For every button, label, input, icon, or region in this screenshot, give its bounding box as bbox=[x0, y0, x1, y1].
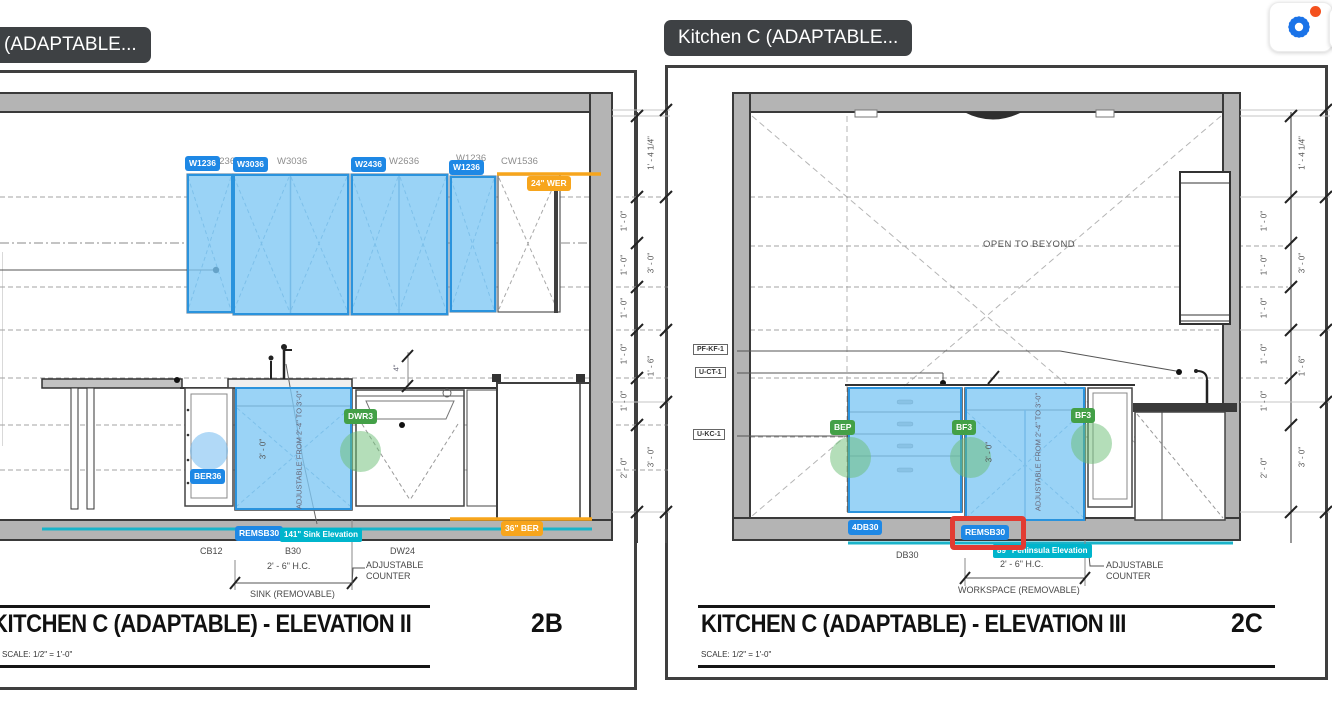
chip-w3036[interactable]: W3036 bbox=[233, 157, 268, 172]
right-view-scale: SCALE: 1/2" = 1'-0" bbox=[701, 649, 771, 659]
dim-label: 1' - 4 1/4" bbox=[647, 136, 656, 170]
dim-label: 3' - 0" bbox=[647, 253, 656, 273]
marker-circle-ber36[interactable] bbox=[190, 432, 228, 470]
chip-bf3-b[interactable]: BF3 bbox=[1071, 408, 1095, 423]
marker-circle-dwr3[interactable] bbox=[340, 431, 381, 472]
settings-button[interactable] bbox=[1269, 2, 1332, 52]
chip-remsb30-left[interactable]: REMSB30 bbox=[235, 526, 283, 541]
base-label-db30: DB30 bbox=[896, 550, 919, 560]
base-label-cb12: CB12 bbox=[200, 546, 223, 556]
dim-hc-left: 2' - 6" H.C. bbox=[267, 561, 310, 571]
cab-dim-3ft-right: 3' - 0" bbox=[985, 442, 994, 462]
dim-label: 1' - 0" bbox=[620, 298, 629, 318]
right-view-tooltip[interactable]: Kitchen C (ADAPTABLE... bbox=[664, 20, 912, 56]
title-rule bbox=[698, 665, 1275, 668]
right-sheet-number: 2C bbox=[1231, 608, 1263, 639]
chip-w2436[interactable]: W2436 bbox=[351, 157, 386, 172]
dim-label: 1' - 0" bbox=[1260, 298, 1269, 318]
dim-label: 3' - 0" bbox=[647, 447, 656, 467]
highlight-w3036[interactable] bbox=[233, 174, 349, 315]
base-label-b30: B30 bbox=[285, 546, 301, 556]
highlight-w1236-b[interactable] bbox=[450, 176, 496, 312]
flag-sink-elevation[interactable]: 141" Sink Elevation bbox=[280, 528, 362, 542]
marker-circle-bep[interactable] bbox=[830, 437, 871, 478]
drawing-viewer: { "ui": { "tooltip_left": "(ADAPTABLE...… bbox=[0, 0, 1332, 714]
chip-w1236-b[interactable]: W1236 bbox=[449, 160, 484, 175]
dim-label: 3' - 0" bbox=[1298, 253, 1307, 273]
left-sheet-number: 2B bbox=[531, 608, 563, 639]
highlight-sink-base[interactable] bbox=[235, 387, 352, 510]
title-rule bbox=[698, 605, 1275, 608]
chip-24-wer[interactable]: 24" WER bbox=[527, 176, 571, 191]
wall-cab-label: W3036 bbox=[277, 156, 307, 167]
dim-hc-right: 2' - 6" H.C. bbox=[1000, 559, 1043, 569]
title-rule bbox=[0, 605, 430, 608]
dim-label: 3' - 0" bbox=[1298, 447, 1307, 467]
dim-label: 2' - 0" bbox=[1260, 458, 1269, 478]
left-view-tooltip[interactable]: (ADAPTABLE... bbox=[0, 27, 151, 63]
chip-36-ber[interactable]: 36" BER bbox=[501, 521, 543, 536]
chip-bf3-a[interactable]: BF3 bbox=[952, 420, 976, 435]
chip-w1236-a[interactable]: W1236 bbox=[185, 156, 220, 171]
highlight-w1236-a[interactable] bbox=[187, 174, 233, 313]
open-to-beyond-note: OPEN TO BEYOND bbox=[983, 239, 1075, 250]
dim-4in: 4" bbox=[392, 365, 401, 372]
dim-label: 1' - 4 1/4" bbox=[1298, 136, 1307, 170]
ref-tag-u-ct-1[interactable]: U-CT-1 bbox=[695, 367, 726, 378]
dim-label: 1' - 6" bbox=[1298, 356, 1307, 376]
base-label-dw24: DW24 bbox=[390, 546, 415, 556]
chip-4db30[interactable]: 4DB30 bbox=[848, 520, 882, 535]
dim-label: 1' - 0" bbox=[620, 211, 629, 231]
selection-highlight-remsb30 bbox=[950, 516, 1026, 550]
note-adjustable-counter-right: ADJUSTABLE COUNTER bbox=[1106, 560, 1168, 583]
wall-cab-label: W2636 bbox=[389, 156, 419, 167]
chip-bep[interactable]: BEP bbox=[830, 420, 855, 435]
marker-circle-bf3-b[interactable] bbox=[1071, 423, 1112, 464]
dim-label: 1' - 0" bbox=[620, 344, 629, 364]
dim-label: 1' - 0" bbox=[1260, 391, 1269, 411]
notification-dot-icon bbox=[1310, 6, 1321, 17]
right-view-title: KITCHEN C (ADAPTABLE) - ELEVATION III bbox=[701, 610, 1126, 639]
ref-tag-u-kc-1[interactable]: U-KC-1 bbox=[693, 429, 725, 440]
left-view-title: KITCHEN C (ADAPTABLE) - ELEVATION II bbox=[0, 610, 411, 639]
dim-label: 1' - 0" bbox=[620, 391, 629, 411]
ref-tag-pf-kf-1[interactable]: PF-KF-1 bbox=[693, 344, 728, 355]
dim-label: 1' - 6" bbox=[647, 356, 656, 376]
cab-adjustable-range-right: ADJUSTABLE FROM 2'-4" TO 3'-0" bbox=[1034, 393, 1043, 511]
dim-label: 1' - 0" bbox=[1260, 344, 1269, 364]
chip-ber36[interactable]: BER36 bbox=[190, 469, 225, 484]
note-sink-removable: SINK (REMOVABLE) bbox=[250, 589, 335, 599]
highlight-w2636[interactable] bbox=[351, 174, 448, 315]
title-rule bbox=[0, 665, 430, 668]
cab-dim-3ft: 3' - 0" bbox=[259, 439, 268, 459]
adjacent-sheet-edge bbox=[2, 252, 3, 446]
wall-cab-label: CW1536 bbox=[501, 156, 538, 167]
cab-adjustable-range: ADJUSTABLE FROM 2'-4" TO 3'-0" bbox=[295, 391, 304, 509]
chip-dwr3[interactable]: DWR3 bbox=[344, 409, 377, 424]
dim-label: 1' - 0" bbox=[1260, 211, 1269, 231]
gear-icon bbox=[1284, 12, 1314, 42]
note-adjustable-counter-left: ADJUSTABLE COUNTER bbox=[366, 560, 428, 583]
left-view-scale: SCALE: 1/2" = 1'-0" bbox=[2, 649, 72, 659]
dim-label: 1' - 0" bbox=[1260, 255, 1269, 275]
dim-label: 1' - 0" bbox=[620, 255, 629, 275]
note-workspace-removable: WORKSPACE (REMOVABLE) bbox=[958, 585, 1080, 595]
dim-label: 2' - 0" bbox=[620, 458, 629, 478]
